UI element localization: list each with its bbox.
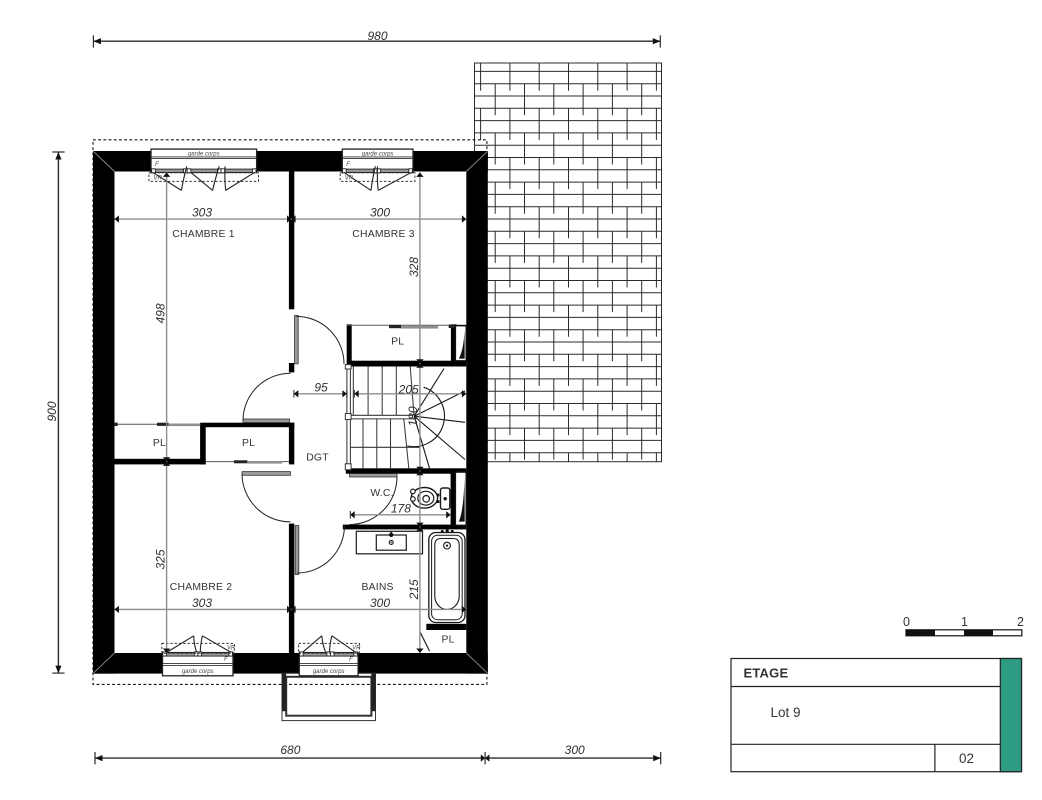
svg-text:VR: VR bbox=[154, 176, 163, 182]
svg-text:F: F bbox=[346, 162, 350, 168]
svg-text:300: 300 bbox=[370, 596, 390, 610]
svg-text:F: F bbox=[224, 657, 228, 663]
svg-text:02: 02 bbox=[959, 751, 974, 766]
svg-text:CHAMBRE 2: CHAMBRE 2 bbox=[170, 582, 232, 593]
svg-text:VR: VR bbox=[227, 646, 236, 652]
svg-text:VR: VR bbox=[352, 646, 361, 652]
svg-text:DGT: DGT bbox=[306, 453, 329, 464]
svg-text:F: F bbox=[155, 162, 159, 168]
svg-text:CHAMBRE 1: CHAMBRE 1 bbox=[172, 229, 234, 240]
svg-text:garde corps: garde corps bbox=[313, 669, 345, 675]
svg-text:CHAMBRE 3: CHAMBRE 3 bbox=[352, 229, 414, 240]
svg-text:garde corps: garde corps bbox=[182, 669, 214, 675]
svg-text:ETAGE: ETAGE bbox=[744, 666, 789, 681]
svg-text:680: 680 bbox=[280, 743, 300, 757]
svg-text:215: 215 bbox=[407, 579, 421, 600]
svg-text:PL: PL bbox=[242, 438, 255, 449]
svg-text:PL: PL bbox=[153, 438, 166, 449]
svg-text:2: 2 bbox=[1017, 615, 1024, 629]
svg-text:328: 328 bbox=[407, 257, 421, 277]
svg-text:PL: PL bbox=[391, 337, 404, 348]
svg-text:PL: PL bbox=[441, 635, 454, 646]
svg-text:VR: VR bbox=[345, 176, 354, 182]
svg-text:205: 205 bbox=[398, 382, 419, 396]
svg-text:garde corps: garde corps bbox=[188, 152, 220, 158]
svg-text:300: 300 bbox=[565, 743, 585, 757]
svg-text:garde corps: garde corps bbox=[362, 152, 394, 158]
svg-text:325: 325 bbox=[153, 549, 167, 569]
svg-text:303: 303 bbox=[192, 596, 212, 610]
svg-text:0: 0 bbox=[903, 615, 910, 629]
svg-text:498: 498 bbox=[153, 303, 167, 323]
svg-text:BAINS: BAINS bbox=[362, 582, 394, 593]
svg-text:178: 178 bbox=[391, 502, 411, 516]
svg-text:303: 303 bbox=[192, 206, 212, 220]
svg-text:180: 180 bbox=[406, 406, 420, 426]
svg-text:Lot 9: Lot 9 bbox=[771, 705, 801, 720]
svg-text:900: 900 bbox=[45, 401, 59, 421]
svg-text:W.C.: W.C. bbox=[370, 488, 393, 499]
svg-text:F: F bbox=[349, 657, 353, 663]
svg-text:980: 980 bbox=[367, 29, 387, 43]
svg-text:1: 1 bbox=[961, 615, 968, 629]
svg-text:95: 95 bbox=[314, 381, 328, 395]
svg-text:300: 300 bbox=[370, 206, 390, 220]
